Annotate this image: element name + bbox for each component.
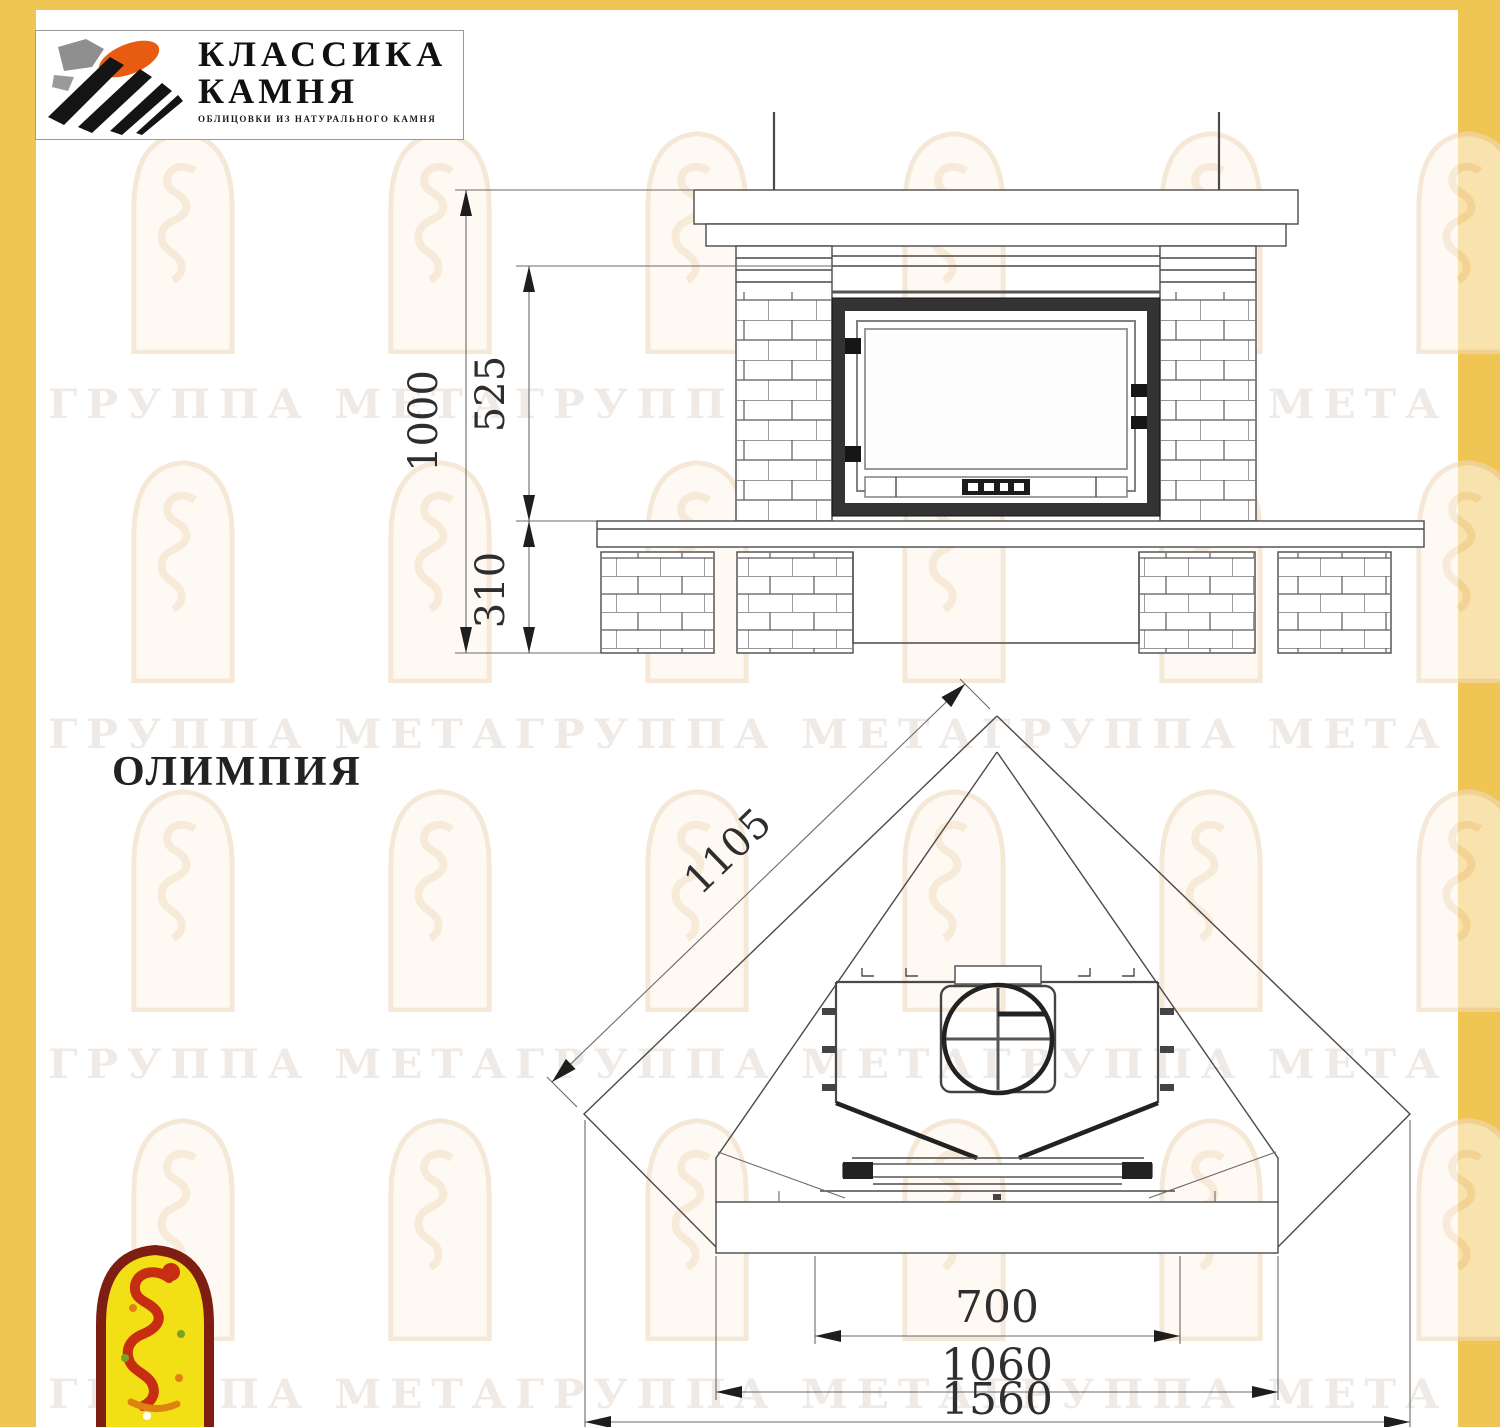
technical-drawing: ГРУППА МЕТАГРУППА МЕТАГРУППА МЕТА ГРУППА… <box>0 0 1500 1427</box>
dim-opening-width: 700 <box>955 1282 1039 1333</box>
right-column <box>1160 246 1256 521</box>
brand-badge <box>95 1238 215 1427</box>
dim-opening-height: 525 <box>468 356 514 432</box>
door-sill-bar <box>843 1164 1152 1177</box>
model-title: ОЛИМПИЯ <box>112 748 363 796</box>
dim-total-height: 1000 <box>401 370 447 472</box>
door-handle <box>1131 384 1147 397</box>
mantel-step <box>706 224 1286 246</box>
flue-collar <box>955 966 1041 984</box>
firebox <box>832 298 1160 516</box>
company-logo-icon <box>44 33 194 135</box>
company-name-line2: КАМНЯ <box>198 73 458 109</box>
plan-bench-front <box>716 1202 1278 1253</box>
dim-total-width: 1560 <box>941 1374 1053 1425</box>
mantel-shelf <box>694 190 1298 224</box>
dim-base-height: 310 <box>468 552 514 628</box>
door-hinge <box>845 338 861 354</box>
company-tagline: ОБЛИЦОВКИ ИЗ НАТУРАЛЬНОГО КАМНЯ <box>198 114 458 124</box>
door-handle <box>1131 416 1147 429</box>
glass-door <box>865 329 1127 469</box>
door-hinge <box>845 446 861 462</box>
watermark-text-row: ГРУППА МЕТАГРУППА МЕТАГРУППА МЕТА <box>48 1041 1448 1088</box>
page: ГРУППА МЕТАГРУППА МЕТАГРУППА МЕТА ГРУППА… <box>0 0 1500 1427</box>
watermark-text-row: ГРУППА МЕТАГРУППА МЕТАГРУППА МЕТА <box>48 1371 1448 1418</box>
company-logo: КЛАССИКА КАМНЯ ОБЛИЦОВКИ ИЗ НАТУРАЛЬНОГО… <box>35 30 464 140</box>
company-logo-text: КЛАССИКА КАМНЯ ОБЛИЦОВКИ ИЗ НАТУРАЛЬНОГО… <box>198 35 458 124</box>
left-column <box>736 246 832 521</box>
hearth-bench <box>597 521 1424 547</box>
company-name-line1: КЛАССИКА <box>198 35 458 73</box>
